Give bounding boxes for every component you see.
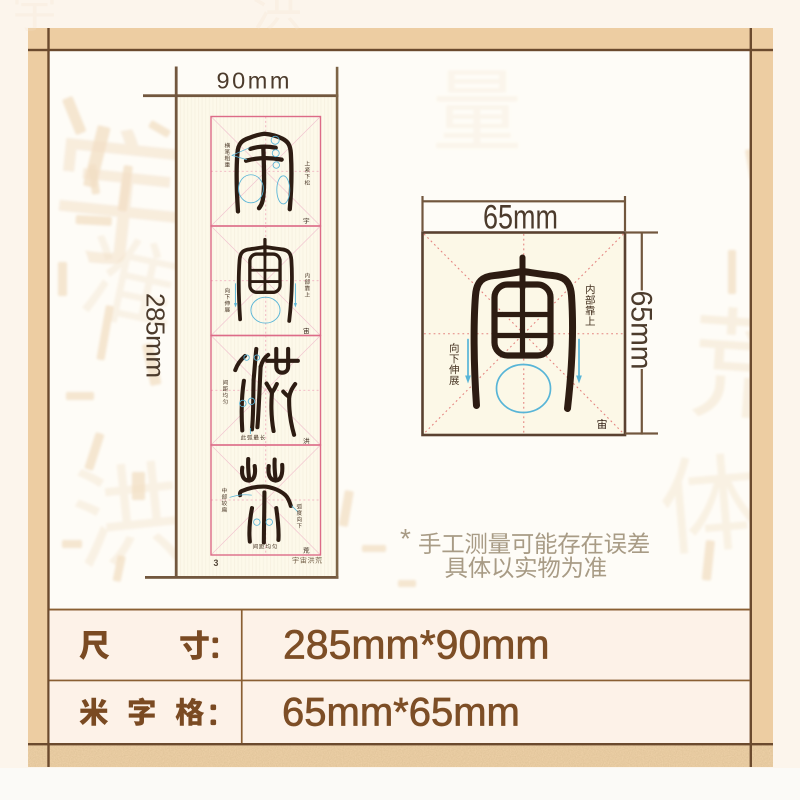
svg-text:285mm*90mm: 285mm*90mm	[283, 622, 550, 668]
svg-text:*: *	[400, 523, 411, 554]
svg-text:90mm: 90mm	[217, 68, 290, 94]
svg-text:285mm: 285mm	[141, 293, 171, 378]
svg-text:3: 3	[214, 558, 219, 568]
svg-text:65mm: 65mm	[625, 291, 658, 370]
svg-text:65mm*65mm: 65mm*65mm	[282, 691, 520, 735]
svg-text:65mm: 65mm	[483, 199, 558, 237]
